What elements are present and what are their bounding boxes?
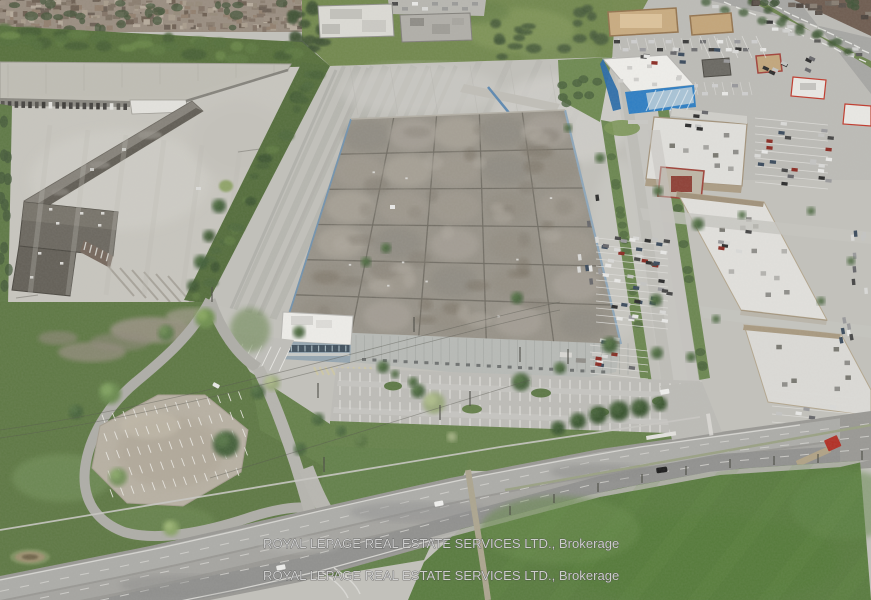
svg-text:ROYAL LEPAGE REAL ESTATE SERVI: ROYAL LEPAGE REAL ESTATE SERVICES LTD., …: [263, 568, 619, 583]
svg-text:ROYAL LEPAGE REAL ESTATE SERVI: ROYAL LEPAGE REAL ESTATE SERVICES LTD., …: [263, 536, 619, 551]
